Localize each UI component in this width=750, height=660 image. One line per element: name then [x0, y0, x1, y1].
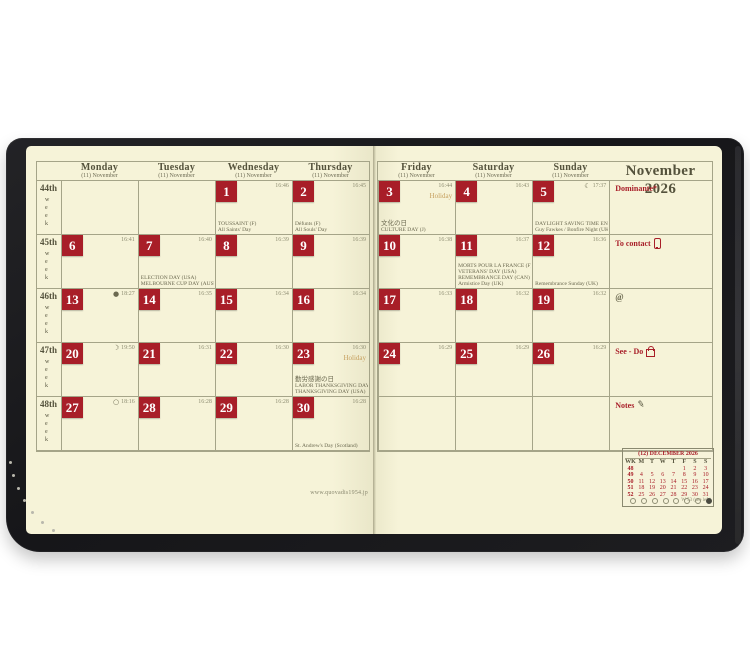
day-header-monday: Monday(11) November — [61, 162, 138, 180]
sunset-time-value: 16:43 — [515, 183, 529, 189]
sunset-time: 16:30 — [352, 345, 366, 351]
day-name: Tuesday — [138, 162, 215, 173]
week-number-cell: 47thweek — [37, 343, 61, 396]
day-header-tuesday: Tuesday(11) November — [138, 162, 215, 180]
sunset-time: ☾17:37 — [584, 183, 606, 189]
holiday-notes: DAYLIGHT SAVING TIME ENDS (CAN - USA)Guy… — [535, 221, 608, 233]
day-number: 1 — [216, 181, 237, 202]
week-word-letter: e — [45, 258, 61, 266]
week-row-47th-right: 2416:292516:292616:29See - Do — [378, 342, 712, 396]
day-name: Sunday — [532, 162, 609, 173]
sidebar-section-label: See - Do — [615, 346, 655, 357]
sidebar-section-label: Notes✎ — [615, 400, 645, 410]
day-cell-29: 2916:28 — [215, 397, 292, 450]
planner-photo: Monday(11) NovemberTuesday(11) NovemberW… — [0, 0, 750, 660]
day-number: 14 — [139, 289, 160, 310]
week-word: week — [37, 355, 61, 390]
day-cell-7: 716:40ELECTION DAY (USA)MELBOURNE CUP DA… — [138, 235, 215, 288]
sunset-time: 16:29 — [593, 345, 607, 351]
day-number: 30 — [293, 397, 314, 418]
sunset-time: 16:45 — [352, 183, 366, 189]
holiday-notes: TOUSSAINT (F)All Saints' Day — [218, 221, 291, 233]
day-subtitle: (11) November — [215, 173, 292, 179]
tear-dot — [52, 529, 55, 532]
tear-dot — [9, 461, 12, 464]
day-cell-20: 20☽19:50 — [61, 343, 138, 396]
day-number: 8 — [216, 235, 237, 256]
holiday-label: Holiday — [430, 192, 453, 200]
day-cell-26: 2616:29 — [532, 343, 609, 396]
holiday-note-line: All Souls' Day — [295, 227, 368, 233]
sunset-time-value: 16:30 — [352, 345, 366, 351]
sunset-time: 16:37 — [515, 237, 529, 243]
holiday-notes: ELECTION DAY (USA)MELBOURNE CUP DAY (AUS… — [141, 275, 214, 287]
sunset-time: 16:44 — [438, 183, 452, 189]
day-number: 18 — [456, 289, 477, 310]
day-number: 6 — [62, 235, 83, 256]
sunset-time: 16:29 — [515, 345, 529, 351]
week-word-letter: k — [45, 274, 61, 282]
week-row-45th: 45thweek616:41716:40ELECTION DAY (USA)ME… — [37, 234, 369, 288]
holiday-notes: Remembrance Sunday (UK) — [535, 281, 608, 287]
week-word-letter: k — [45, 382, 61, 390]
day-cell-21: 2116:31 — [138, 343, 215, 396]
moon-phase-icon: ☾ — [584, 183, 590, 189]
sunset-time-value: 16:33 — [438, 291, 452, 297]
sunset-time: 16:28 — [198, 399, 212, 405]
day-name: Monday — [61, 162, 138, 173]
holiday-note-line: 勤労感謝の日 — [295, 375, 368, 383]
sunset-time-value: 16:30 — [275, 345, 289, 351]
sunset-time: 16:38 — [438, 237, 452, 243]
day-cell-4: 416:43 — [455, 181, 532, 234]
perforation-dot — [641, 498, 647, 504]
sunset-time: ●18:27 — [113, 291, 135, 297]
week-word-letter: e — [45, 374, 61, 382]
sunset-time-value: 16:31 — [198, 345, 212, 351]
sidebar-section-to-contact: To contact — [609, 235, 712, 288]
week-row-44th-right: 316:44Holiday文化の日CULTURE DAY (J)416:435☾… — [378, 180, 712, 234]
day-subtitle: (11) November — [455, 173, 532, 179]
moon-phase-icon: ● — [113, 291, 119, 297]
right-day-headers: Friday(11) NovemberSaturday(11) November… — [378, 162, 712, 180]
sunset-time-value: 16:28 — [275, 399, 289, 405]
perforation-dot — [695, 498, 701, 504]
perforation-dots — [630, 498, 712, 504]
holiday-notes: 勤労感謝の日LABOR THANKSGIVING DAY (J)THANKSGI… — [295, 375, 368, 395]
brand-url: www.quovadis1954.jp — [310, 490, 368, 496]
sunset-time-value: 16:40 — [198, 237, 212, 243]
sunset-time: 16:41 — [121, 237, 135, 243]
day-cell-30: 3016:28St. Andrew's Day (Scotland) — [292, 397, 369, 450]
tear-dot — [23, 499, 26, 502]
week-word: week — [37, 193, 61, 228]
day-cell-28: 2816:28 — [138, 397, 215, 450]
day-cell-empty — [455, 397, 532, 450]
day-number: 28 — [139, 397, 160, 418]
day-number: 16 — [293, 289, 314, 310]
sunset-time: 16:32 — [515, 291, 529, 297]
sidebar-section-dominante: Dominante* — [609, 181, 712, 234]
day-number: 9 — [293, 235, 314, 256]
day-name: Wednesday — [215, 162, 292, 173]
sunset-time-value: 16:32 — [515, 291, 529, 297]
left-calendar-frame: Monday(11) NovemberTuesday(11) NovemberW… — [36, 161, 370, 452]
month-title: November 2026 — [609, 162, 712, 180]
day-cell-empty — [378, 397, 455, 450]
sunset-time: 16:43 — [515, 183, 529, 189]
moon-phase-icon: ○ — [113, 399, 119, 405]
week-word-letter: w — [45, 304, 61, 312]
day-cell-27: 27○18:16 — [61, 397, 138, 450]
day-number: 24 — [379, 343, 400, 364]
perforation-dot — [706, 498, 712, 504]
week-column-spacer — [37, 162, 61, 180]
right-calendar-grid: 316:44Holiday文化の日CULTURE DAY (J)416:435☾… — [378, 180, 712, 451]
sidebar-label-text: See - Do — [615, 347, 643, 356]
sunset-time: 16:39 — [352, 237, 366, 243]
sunset-time-value: 18:27 — [121, 291, 135, 297]
week-row-46th-right: 1716:331816:321916:32@ — [378, 288, 712, 342]
week-label: 46th — [37, 289, 61, 301]
sunset-time: 16:46 — [275, 183, 289, 189]
day-number: 3 — [379, 181, 400, 202]
week-label: 45th — [37, 235, 61, 247]
day-cell-14: 1416:35 — [138, 289, 215, 342]
day-cell-13: 13●18:27 — [61, 289, 138, 342]
holiday-note-line: THANKSGIVING DAY (USA) — [295, 389, 368, 395]
perforation-dot — [630, 498, 636, 504]
week-word: week — [37, 409, 61, 444]
day-cell-24: 2416:29 — [378, 343, 455, 396]
day-header-thursday: Thursday(11) November — [292, 162, 369, 180]
week-word: week — [37, 247, 61, 282]
sunset-time: 16:28 — [352, 399, 366, 405]
week-row-48th: 48thweek27○18:162816:282916:283016:28St.… — [37, 396, 369, 450]
day-cell-empty — [532, 397, 609, 450]
week-number-cell: 44thweek — [37, 181, 61, 234]
sidebar-label-text: Notes — [615, 401, 634, 410]
week-word-letter: e — [45, 312, 61, 320]
sidebar-section-see-do: See - Do — [609, 343, 712, 396]
sidebar-label-text: Dominante* — [615, 184, 657, 193]
day-number: 19 — [533, 289, 554, 310]
perforation-dot — [663, 498, 669, 504]
sunset-time: 16:32 — [593, 291, 607, 297]
holiday-notes: 文化の日CULTURE DAY (J) — [381, 219, 454, 233]
holiday-note-line: Guy Fawkes / Bonfire Night (UK - Norther… — [535, 227, 608, 233]
sunset-time-value: 16:44 — [438, 183, 452, 189]
sunset-time-value: 16:38 — [438, 237, 452, 243]
week-row-47th: 47thweek20☽19:502116:312216:302316:30Hol… — [37, 342, 369, 396]
sidebar-section-at: @ — [609, 289, 712, 342]
perforation-dot — [673, 498, 679, 504]
day-number: 11 — [456, 235, 477, 256]
left-calendar-grid: 44thweek116:46TOUSSAINT (F)All Saints' D… — [37, 180, 369, 451]
day-name: Friday — [378, 162, 455, 173]
sunset-time-value: 16:32 — [593, 291, 607, 297]
week-label: 44th — [37, 181, 61, 193]
sunset-time: 16:29 — [438, 345, 452, 351]
sunset-time: 16:34 — [352, 291, 366, 297]
day-cell-9: 916:39 — [292, 235, 369, 288]
sunset-time: 16:36 — [593, 237, 607, 243]
right-calendar-frame: Friday(11) NovemberSaturday(11) November… — [377, 161, 713, 452]
day-cell-15: 1516:34 — [215, 289, 292, 342]
sunset-time-value: 16:28 — [352, 399, 366, 405]
day-cell-25: 2516:29 — [455, 343, 532, 396]
day-cell-empty — [61, 181, 138, 234]
day-cell-1: 116:46TOUSSAINT (F)All Saints' Day — [215, 181, 292, 234]
sunset-time-value: 16:39 — [275, 237, 289, 243]
sunset-time-value: 18:16 — [121, 399, 135, 405]
day-number: 4 — [456, 181, 477, 202]
left-page: Monday(11) NovemberTuesday(11) NovemberW… — [26, 146, 374, 534]
day-name: Thursday — [292, 162, 369, 173]
week-word-letter: e — [45, 266, 61, 274]
sunset-time: ○18:16 — [113, 399, 135, 405]
week-row-46th: 46thweek13●18:271416:351516:341616:34 — [37, 288, 369, 342]
week-number-cell: 48thweek — [37, 397, 61, 450]
week-label: 47th — [37, 343, 61, 355]
day-cell-5: 5☾17:37DAYLIGHT SAVING TIME ENDS (CAN - … — [532, 181, 609, 234]
sidebar-section-label: Dominante* — [615, 184, 657, 193]
sunset-time-value: 16:46 — [275, 183, 289, 189]
day-cell-16: 1616:34 — [292, 289, 369, 342]
holiday-note-line: Armistice Day (UK) — [458, 281, 531, 287]
day-number: 20 — [62, 343, 83, 364]
day-number: 17 — [379, 289, 400, 310]
week-word-letter: e — [45, 212, 61, 220]
sunset-time-value: 16:39 — [352, 237, 366, 243]
day-subtitle: (11) November — [138, 173, 215, 179]
week-row-44th: 44thweek116:46TOUSSAINT (F)All Saints' D… — [37, 180, 369, 234]
tear-dot — [17, 487, 20, 490]
day-subtitle: (11) November — [292, 173, 369, 179]
sunset-time: 16:33 — [438, 291, 452, 297]
week-word: week — [37, 301, 61, 336]
day-cell-12: 1216:36Remembrance Sunday (UK) — [532, 235, 609, 288]
day-header-saturday: Saturday(11) November — [455, 162, 532, 180]
holiday-note-line: Remembrance Sunday (UK) — [535, 281, 608, 287]
sunset-time-value: 16:34 — [275, 291, 289, 297]
day-cell-11: 1116:37MORTS POUR LA FRANCE (F)VETERANS'… — [455, 235, 532, 288]
sunset-time: 16:28 — [275, 399, 289, 405]
day-cell-empty — [138, 181, 215, 234]
week-word-letter: e — [45, 428, 61, 436]
week-row-45th-right: 1016:381116:37MORTS POUR LA FRANCE (F)VE… — [378, 234, 712, 288]
day-number: 23 — [293, 343, 314, 364]
sunset-time: 16:39 — [275, 237, 289, 243]
week-word-letter: e — [45, 420, 61, 428]
sunset-time-value: 16:29 — [438, 345, 452, 351]
phone-icon — [654, 238, 661, 249]
tear-dot — [31, 511, 34, 514]
sunset-time-value: 17:37 — [593, 183, 607, 189]
day-cell-19: 1916:32 — [532, 289, 609, 342]
sunset-time: 16:34 — [275, 291, 289, 297]
day-number: 29 — [216, 397, 237, 418]
day-cell-17: 1716:33 — [378, 289, 455, 342]
day-number: 27 — [62, 397, 83, 418]
tear-dot — [41, 521, 44, 524]
day-number: 10 — [379, 235, 400, 256]
open-spread: Monday(11) NovemberTuesday(11) NovemberW… — [26, 146, 722, 534]
day-number: 2 — [293, 181, 314, 202]
sunset-time-value: 16:34 — [352, 291, 366, 297]
holiday-notes: Défunts (F)All Souls' Day — [295, 221, 368, 233]
week-word-letter: k — [45, 436, 61, 444]
holiday-note-line: CULTURE DAY (J) — [381, 227, 454, 233]
day-cell-3: 316:44Holiday文化の日CULTURE DAY (J) — [378, 181, 455, 234]
day-cell-18: 1816:32 — [455, 289, 532, 342]
sunset-time: 16:35 — [198, 291, 212, 297]
sunset-time-value: 16:37 — [515, 237, 529, 243]
sunset-time: 16:40 — [198, 237, 212, 243]
holiday-note-line: St. Andrew's Day (Scotland) — [295, 443, 368, 449]
sunset-time: 16:31 — [198, 345, 212, 351]
day-cell-23: 2316:30Holiday勤労感謝の日LABOR THANKSGIVING D… — [292, 343, 369, 396]
day-header-wednesday: Wednesday(11) November — [215, 162, 292, 180]
bag-icon — [646, 349, 655, 357]
sunset-time-value: 19:50 — [121, 345, 135, 351]
holiday-notes: MORTS POUR LA FRANCE (F)VETERANS' DAY (U… — [458, 263, 531, 287]
day-number: 13 — [62, 289, 83, 310]
week-word-letter: w — [45, 250, 61, 258]
day-number: 26 — [533, 343, 554, 364]
sidebar-section-label: @ — [615, 292, 623, 302]
right-page: Friday(11) NovemberSaturday(11) November… — [374, 146, 722, 534]
moon-phase-icon: ☽ — [113, 345, 119, 351]
day-number: 22 — [216, 343, 237, 364]
sunset-time-value: 16:28 — [198, 399, 212, 405]
holiday-note-line: 文化の日 — [381, 219, 454, 227]
week-word-letter: k — [45, 328, 61, 336]
day-header-sunday: Sunday(11) November — [532, 162, 609, 180]
week-word-letter: k — [45, 220, 61, 228]
sunset-time: ☽19:50 — [113, 345, 135, 351]
sunset-time-value: 16:45 — [352, 183, 366, 189]
day-number: 5 — [533, 181, 554, 202]
sunset-time-value: 16:29 — [515, 345, 529, 351]
perforation-dot — [652, 498, 658, 504]
day-cell-8: 816:39 — [215, 235, 292, 288]
holiday-note-line: MELBOURNE CUP DAY (AUST) — [141, 281, 214, 287]
week-row-48th-right: Notes✎ — [378, 396, 712, 450]
day-cell-2: 216:45Défunts (F)All Souls' Day — [292, 181, 369, 234]
day-number: 12 — [533, 235, 554, 256]
sunset-time-value: 16:36 — [593, 237, 607, 243]
day-cell-6: 616:41 — [61, 235, 138, 288]
week-word-letter: e — [45, 366, 61, 374]
week-word-letter: w — [45, 412, 61, 420]
day-number: 21 — [139, 343, 160, 364]
day-subtitle: (11) November — [378, 173, 455, 179]
sidebar-label-text: @ — [615, 292, 623, 302]
week-word-letter: e — [45, 204, 61, 212]
day-number: 15 — [216, 289, 237, 310]
day-subtitle: (11) November — [532, 173, 609, 179]
week-word-letter: w — [45, 358, 61, 366]
holiday-label: Holiday — [343, 354, 366, 362]
day-number: 7 — [139, 235, 160, 256]
week-number-cell: 45thweek — [37, 235, 61, 288]
sunset-time-value: 16:35 — [198, 291, 212, 297]
week-number-cell: 46thweek — [37, 289, 61, 342]
sidebar-label-text: To contact — [615, 239, 650, 248]
day-number: 25 — [456, 343, 477, 364]
mini-calendar-grid: WKMTWTFSS4812349456789105011121314151617… — [625, 459, 711, 498]
week-label: 48th — [37, 397, 61, 409]
sunset-time-value: 16:41 — [121, 237, 135, 243]
sunset-time: 16:30 — [275, 345, 289, 351]
sidebar-section-notes: Notes✎ — [609, 397, 712, 450]
tear-dot — [12, 474, 15, 477]
holiday-notes: St. Andrew's Day (Scotland) — [295, 443, 368, 449]
sunset-time-value: 16:29 — [593, 345, 607, 351]
day-cell-22: 2216:30 — [215, 343, 292, 396]
left-day-headers: Monday(11) NovemberTuesday(11) NovemberW… — [37, 162, 369, 180]
week-word-letter: e — [45, 320, 61, 328]
day-subtitle: (11) November — [61, 173, 138, 179]
mini-calendar-title: (12) DECEMBER 2026 — [625, 450, 711, 459]
page-seam — [373, 146, 376, 534]
perforation-dot — [684, 498, 690, 504]
day-header-friday: Friday(11) November — [378, 162, 455, 180]
day-name: Saturday — [455, 162, 532, 173]
day-cell-10: 1016:38 — [378, 235, 455, 288]
week-word-letter: w — [45, 196, 61, 204]
sidebar-section-label: To contact — [615, 238, 660, 249]
holiday-note-line: All Saints' Day — [218, 227, 291, 233]
pen-icon: ✎ — [637, 399, 646, 410]
